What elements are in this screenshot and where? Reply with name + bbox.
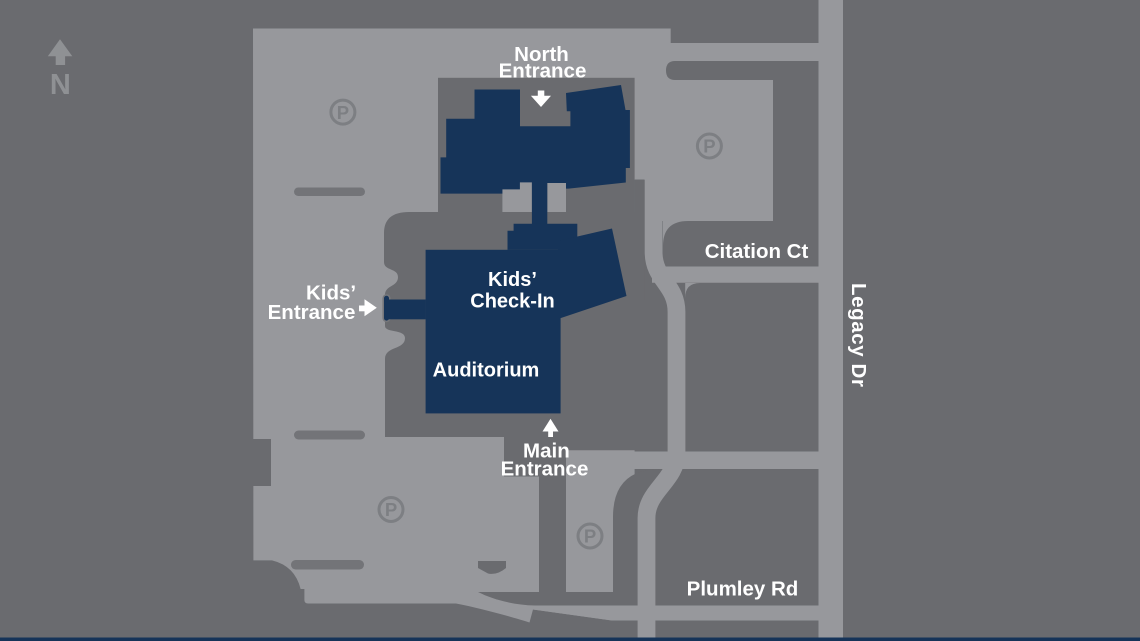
svg-text:P: P [584, 526, 596, 547]
svg-text:Entrance: Entrance [268, 301, 356, 324]
svg-text:N: N [50, 69, 71, 101]
svg-text:Plumley Rd: Plumley Rd [687, 578, 799, 601]
svg-text:P: P [337, 102, 349, 123]
svg-text:P: P [385, 499, 397, 520]
svg-text:Citation Ct: Citation Ct [705, 240, 809, 263]
svg-text:Auditorium: Auditorium [433, 360, 540, 382]
svg-text:Check-In: Check-In [470, 291, 554, 313]
svg-text:P: P [703, 136, 715, 157]
svg-text:Legacy Dr: Legacy Dr [847, 283, 870, 388]
svg-text:Entrance: Entrance [499, 60, 587, 83]
svg-text:Kids’: Kids’ [488, 269, 537, 291]
svg-text:Entrance: Entrance [501, 458, 589, 481]
